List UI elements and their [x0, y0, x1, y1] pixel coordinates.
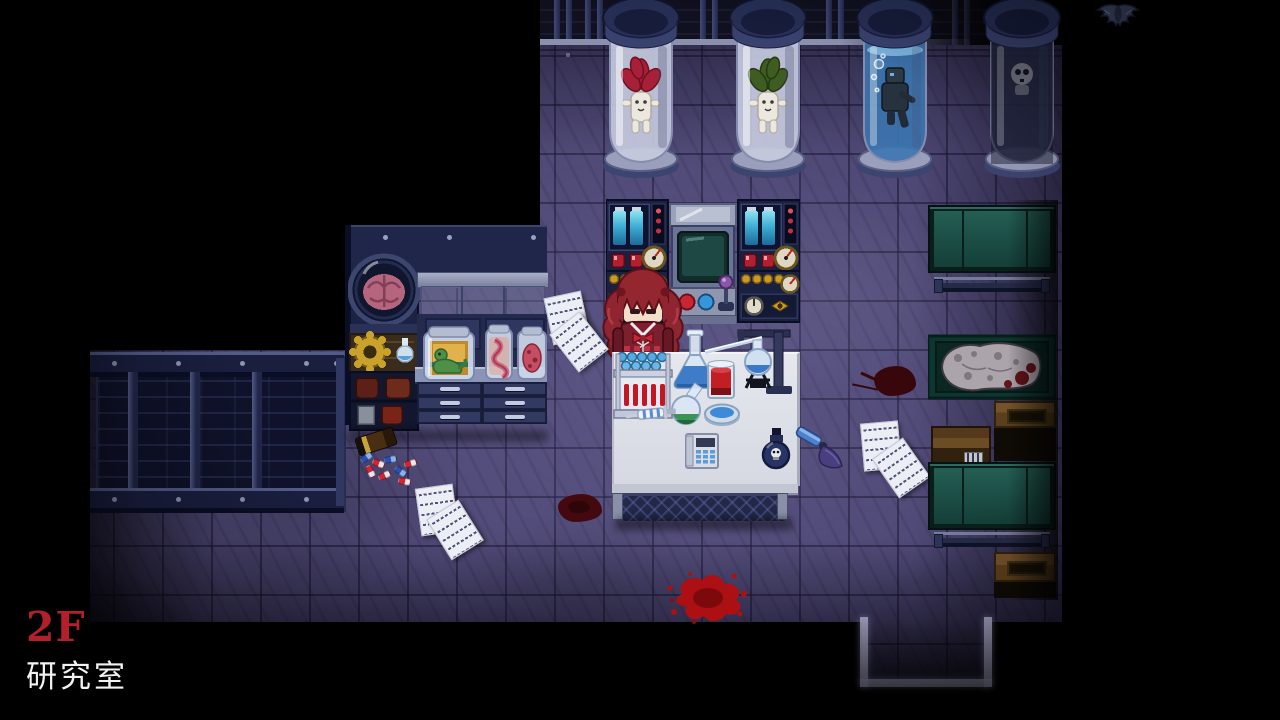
tripod-flask	[745, 340, 771, 388]
bolt	[240, 361, 245, 366]
glass-pane	[934, 468, 962, 524]
scattered-papers	[414, 484, 486, 556]
step-edge-bottom	[860, 679, 992, 687]
bat-creature	[1094, 2, 1142, 32]
specimen-tube-dark	[984, 0, 1060, 178]
table-leg	[777, 493, 788, 520]
blood-pool	[558, 494, 602, 522]
spilled-pills	[354, 426, 428, 484]
scattered-papers	[542, 292, 614, 364]
bolt	[304, 497, 309, 502]
flask-green	[672, 383, 702, 424]
capsule	[365, 464, 377, 479]
creature-jar	[423, 326, 475, 382]
drawer-unit	[417, 382, 547, 424]
beaker-red	[708, 361, 734, 399]
room-label: 研究室	[26, 651, 128, 696]
blood-splat	[664, 568, 748, 624]
poison-bottle	[763, 428, 789, 468]
bolt	[176, 361, 181, 366]
floor-label: 2F	[26, 606, 128, 649]
pill-bottle	[354, 426, 398, 456]
knife	[794, 424, 846, 472]
bolt	[531, 235, 536, 240]
floor-bolt	[566, 53, 570, 57]
specimen-station	[345, 225, 547, 435]
specimen-tube-mandrake-green	[730, 0, 806, 178]
drawer	[483, 397, 546, 409]
specimen-tube-mandrake-red	[603, 0, 679, 178]
bolt	[176, 497, 181, 502]
game-viewport[interactable]: 2F 研究室	[0, 0, 1280, 720]
step-edge-left	[860, 617, 868, 687]
location-indicator: 2F 研究室	[26, 606, 128, 696]
blood-pool	[874, 366, 916, 396]
drawer	[483, 411, 546, 423]
lab-equipment	[612, 310, 795, 496]
rail-bottom	[90, 488, 344, 513]
capsule	[377, 470, 392, 482]
bolt	[383, 235, 388, 240]
telephone	[686, 434, 718, 468]
right-cabinet-column	[928, 200, 1058, 600]
table-leg	[612, 493, 623, 520]
bolt	[112, 497, 117, 502]
capsule	[383, 455, 397, 464]
blood-pool-core	[568, 501, 590, 513]
console-panel-right	[738, 200, 800, 322]
cabinet-shadow	[1008, 200, 1058, 600]
shelf-divider	[503, 286, 505, 314]
bowl-blue	[705, 405, 739, 426]
bolt	[240, 497, 245, 502]
drawer	[418, 383, 481, 395]
specimen-jar	[485, 324, 513, 380]
specimen-tube-liquid	[857, 0, 933, 178]
lab-table-skirt	[622, 493, 786, 521]
drawer	[418, 397, 481, 409]
metal-railing-wall	[90, 348, 348, 518]
glass-pane	[934, 211, 962, 267]
strut	[128, 372, 138, 494]
brain-jar-machine	[348, 246, 420, 432]
bolt	[304, 361, 309, 366]
step-edge-right	[984, 617, 992, 687]
drawer	[483, 383, 546, 395]
table-shadow	[616, 518, 792, 530]
capsule	[403, 458, 417, 468]
strut	[252, 372, 262, 494]
drawer	[418, 411, 481, 423]
bolt	[112, 361, 117, 366]
strut	[190, 372, 200, 494]
blue-button	[699, 295, 714, 310]
gear-icon	[349, 331, 391, 373]
bolt	[447, 235, 452, 240]
specimen-tubes	[596, 0, 1066, 185]
scattered-papers	[858, 422, 930, 494]
shelf-divider	[461, 286, 463, 314]
glass-shelf-panel	[421, 286, 545, 316]
rail-post	[336, 358, 344, 506]
